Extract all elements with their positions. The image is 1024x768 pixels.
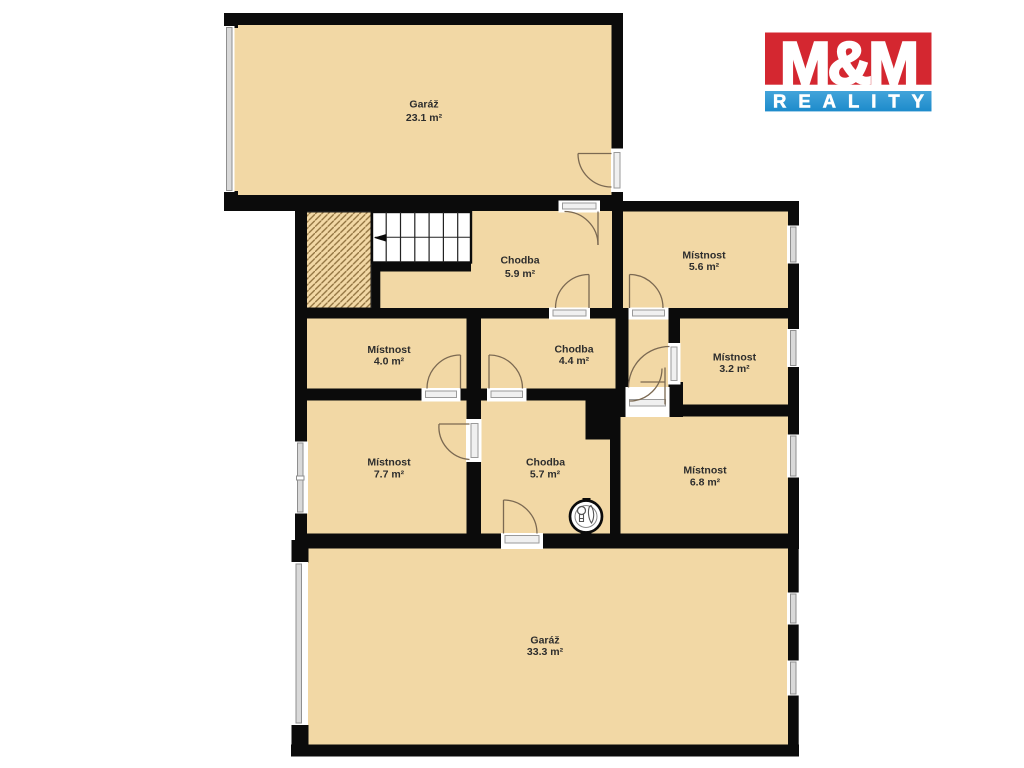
svg-text:Chodba: Chodba <box>500 255 539 267</box>
svg-text:7.7 m²: 7.7 m² <box>374 469 405 481</box>
svg-text:Garáž: Garáž <box>409 99 438 111</box>
svg-text:3.2 m²: 3.2 m² <box>719 363 750 375</box>
svg-text:Místnost: Místnost <box>367 344 411 356</box>
svg-text:23.1 m²: 23.1 m² <box>406 112 443 124</box>
svg-text:5.9 m²: 5.9 m² <box>505 268 536 280</box>
svg-text:Místnost: Místnost <box>367 457 411 469</box>
svg-text:Místnost: Místnost <box>682 250 726 262</box>
svg-text:33.3 m²: 33.3 m² <box>527 646 564 658</box>
svg-text:Místnost: Místnost <box>713 352 757 364</box>
svg-text:5.7 m²: 5.7 m² <box>530 469 561 481</box>
svg-text:Chodba: Chodba <box>554 344 593 356</box>
svg-text:M&M: M&M <box>780 30 916 97</box>
svg-text:Chodba: Chodba <box>526 457 565 469</box>
svg-text:Místnost: Místnost <box>683 465 727 477</box>
svg-text:Garáž: Garáž <box>530 635 559 647</box>
svg-text:5.6 m²: 5.6 m² <box>689 261 720 273</box>
svg-text:6.8 m²: 6.8 m² <box>690 477 721 489</box>
svg-text:4.0 m²: 4.0 m² <box>374 356 405 368</box>
svg-text:4.4 m²: 4.4 m² <box>559 355 590 367</box>
